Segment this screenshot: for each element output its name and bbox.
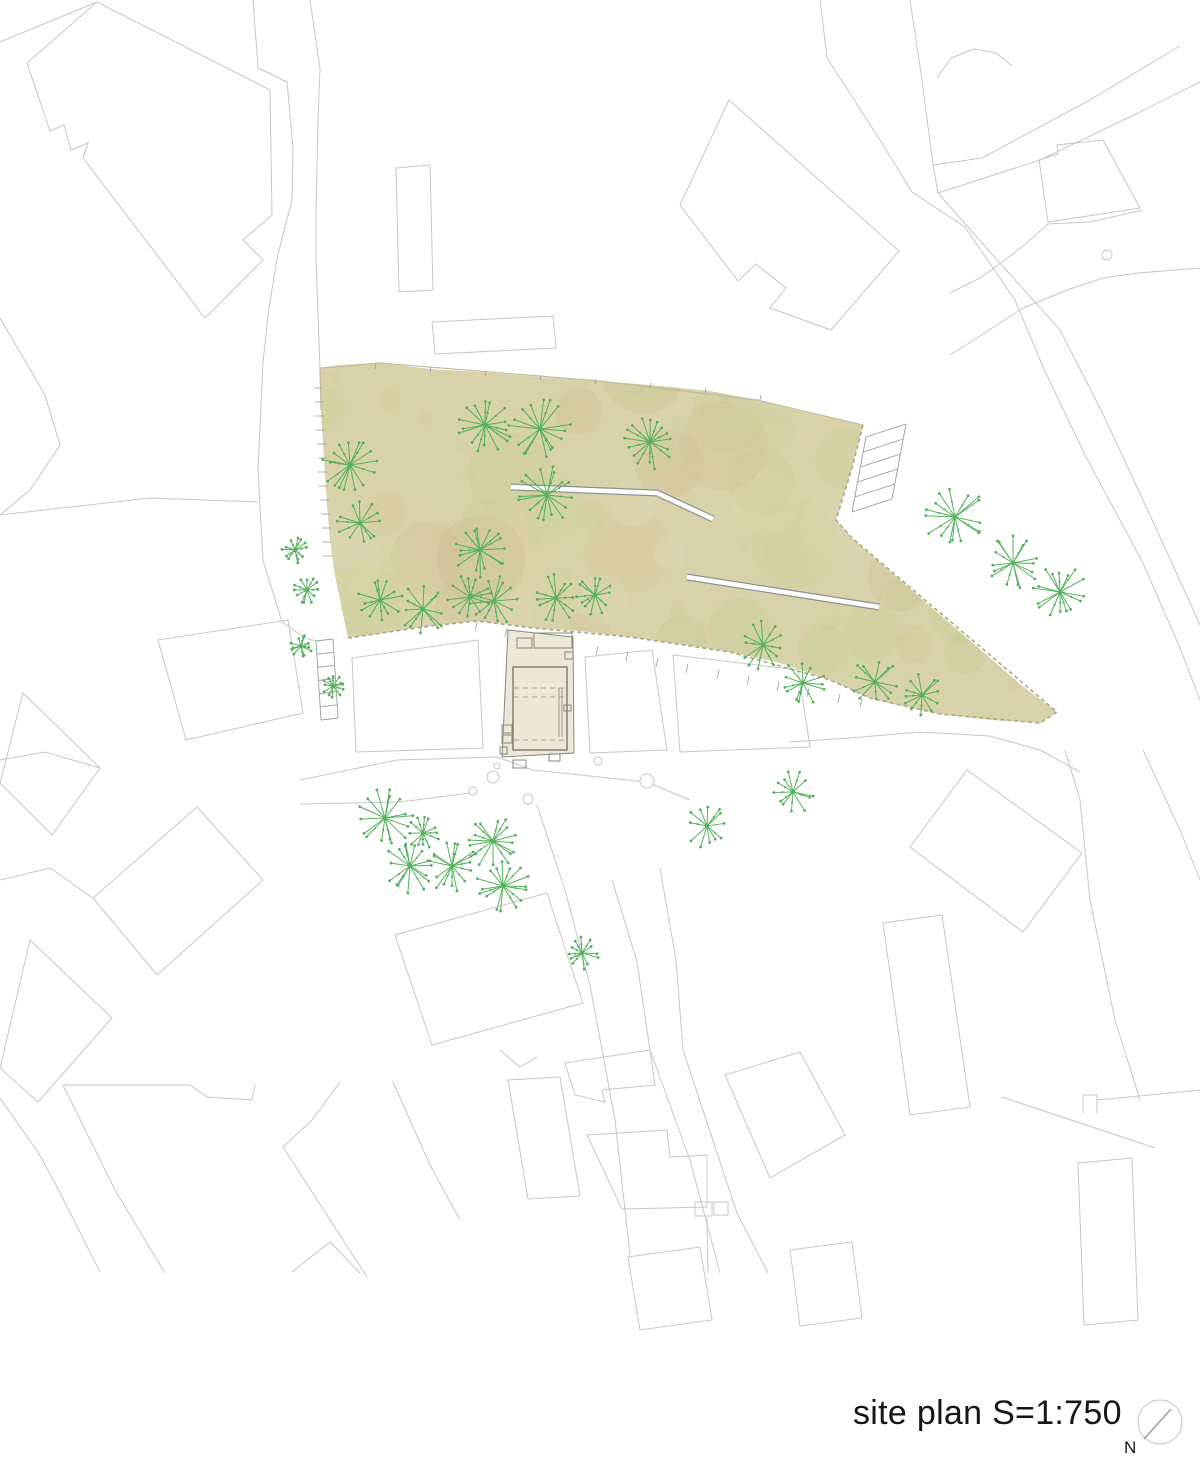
drawing-title: site plan S=1:750	[853, 1396, 1122, 1432]
site-plan-canvas	[0, 0, 1200, 1460]
project-building	[500, 630, 574, 768]
site-plan-drawing: site plan S=1:750 N	[0, 0, 1200, 1460]
north-label: N	[1124, 1438, 1136, 1458]
north-arrow-icon	[1138, 1400, 1182, 1444]
context-map	[0, 0, 1200, 1330]
